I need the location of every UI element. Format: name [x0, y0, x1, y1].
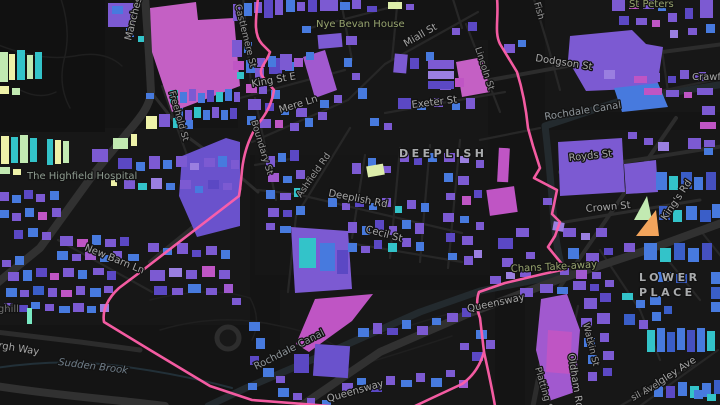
- building: [275, 0, 283, 15]
- building: [639, 320, 648, 329]
- building: [317, 33, 342, 49]
- building: [452, 28, 460, 35]
- building: [204, 158, 215, 167]
- building: [367, 6, 377, 12]
- area-label-deeplish: DEEPLISH: [399, 147, 487, 160]
- building: [27, 55, 33, 79]
- building: [636, 18, 647, 25]
- building: [678, 382, 687, 396]
- building: [138, 36, 144, 42]
- building: [393, 53, 408, 73]
- building: [290, 123, 299, 131]
- building: [275, 120, 283, 128]
- building: [14, 230, 23, 239]
- building: [218, 156, 227, 167]
- building: [221, 110, 228, 120]
- building: [118, 158, 132, 169]
- building: [148, 243, 159, 252]
- building: [667, 332, 675, 352]
- building: [458, 176, 469, 185]
- building: [619, 16, 629, 25]
- building: [33, 286, 44, 295]
- building: [50, 273, 59, 280]
- building: [20, 135, 28, 163]
- building: [202, 266, 215, 277]
- building: [476, 160, 484, 168]
- building: [12, 195, 21, 203]
- building: [448, 253, 457, 260]
- building: [348, 243, 357, 252]
- building: [280, 226, 291, 233]
- building: [604, 70, 615, 79]
- building: [374, 240, 382, 249]
- building: [12, 213, 21, 221]
- building: [432, 318, 441, 325]
- building: [490, 276, 501, 284]
- building: [388, 2, 402, 9]
- building: [194, 107, 201, 118]
- building: [283, 176, 292, 183]
- building: [23, 270, 32, 281]
- building: [268, 208, 279, 217]
- building: [428, 71, 454, 79]
- building: [276, 376, 285, 383]
- building: [668, 13, 677, 22]
- building: [707, 394, 716, 401]
- building: [644, 138, 653, 145]
- building: [677, 328, 685, 350]
- building: [462, 236, 473, 245]
- building: [286, 0, 295, 12]
- building: [138, 183, 147, 190]
- building: [28, 228, 38, 237]
- building: [342, 203, 350, 210]
- building: [320, 243, 335, 271]
- building: [584, 298, 597, 309]
- building: [131, 134, 137, 146]
- building: [688, 248, 699, 262]
- building: [180, 180, 191, 189]
- building: [711, 287, 720, 299]
- building: [11, 137, 18, 163]
- building: [55, 140, 61, 164]
- building: [92, 149, 108, 162]
- building: [540, 284, 553, 293]
- building: [600, 293, 611, 302]
- building: [700, 122, 716, 129]
- building: [224, 284, 233, 293]
- building: [704, 140, 715, 147]
- building: [0, 86, 9, 94]
- building: [460, 216, 469, 223]
- building: [658, 142, 669, 151]
- building: [149, 156, 160, 169]
- building: [605, 280, 614, 287]
- building: [346, 36, 357, 45]
- building: [446, 193, 455, 200]
- building: [169, 268, 182, 277]
- building: [72, 254, 81, 261]
- map-svg: Manchester RdCastlemere StFreehold StKin…: [0, 0, 720, 405]
- building: [348, 222, 357, 233]
- area-label-lower: LOWER: [639, 271, 701, 284]
- building: [702, 243, 712, 260]
- building: [518, 40, 526, 47]
- building: [406, 4, 414, 10]
- building: [644, 243, 657, 260]
- building: [36, 268, 47, 277]
- building: [0, 192, 9, 201]
- building: [652, 20, 660, 27]
- building: [590, 284, 599, 291]
- building: [263, 368, 274, 377]
- building: [712, 204, 720, 218]
- building: [188, 284, 201, 293]
- building: [278, 153, 286, 162]
- building: [600, 333, 609, 342]
- building: [36, 194, 45, 202]
- poi-label-st-peters: St Peters: [629, 0, 674, 10]
- building: [588, 372, 597, 381]
- building: [0, 167, 10, 174]
- building: [78, 270, 87, 279]
- building: [697, 88, 713, 95]
- building: [206, 246, 217, 255]
- building: [384, 123, 392, 130]
- building: [302, 26, 311, 33]
- building: [634, 76, 647, 83]
- building: [73, 303, 84, 312]
- building: [568, 248, 579, 259]
- building: [421, 203, 429, 212]
- building: [266, 223, 275, 230]
- building: [35, 52, 42, 79]
- building: [189, 89, 196, 101]
- building: [294, 58, 303, 67]
- building: [402, 238, 411, 247]
- building: [474, 190, 482, 198]
- building: [104, 286, 113, 293]
- building: [249, 322, 260, 331]
- building: [186, 270, 197, 279]
- building: [688, 138, 701, 149]
- building: [20, 290, 29, 297]
- building: [370, 118, 379, 126]
- building: [628, 132, 637, 139]
- building: [624, 160, 658, 194]
- road-label-crawford-st: Crawford St: [692, 72, 720, 83]
- building: [294, 354, 309, 373]
- building: [308, 0, 317, 12]
- building: [660, 248, 671, 262]
- building: [361, 246, 370, 253]
- park-area: [0, 0, 105, 132]
- building: [113, 138, 128, 149]
- building: [180, 92, 187, 103]
- building: [27, 308, 32, 324]
- building: [652, 312, 661, 321]
- building: [296, 206, 305, 215]
- building: [455, 78, 464, 87]
- building: [657, 328, 665, 352]
- building: [486, 186, 517, 216]
- building: [697, 328, 705, 352]
- building: [410, 58, 419, 69]
- building: [426, 52, 434, 61]
- building: [706, 172, 716, 190]
- building: [306, 52, 314, 60]
- building: [293, 393, 302, 400]
- area-label-springhill: Springhill: [0, 304, 19, 315]
- building: [146, 116, 157, 129]
- building: [666, 386, 675, 398]
- building: [620, 73, 629, 80]
- building: [428, 81, 454, 89]
- building: [387, 328, 398, 335]
- building: [1, 136, 9, 164]
- building: [573, 281, 586, 290]
- building: [688, 28, 697, 35]
- building: [468, 22, 477, 31]
- building: [687, 330, 695, 352]
- building: [340, 2, 350, 10]
- building: [464, 256, 473, 265]
- building: [444, 173, 453, 182]
- building: [656, 172, 667, 190]
- building: [416, 242, 424, 251]
- building: [185, 110, 192, 120]
- building: [395, 206, 402, 213]
- building: [706, 24, 715, 33]
- building: [686, 206, 697, 220]
- building: [234, 92, 240, 102]
- building: [711, 272, 720, 284]
- building: [248, 99, 261, 110]
- building: [373, 323, 382, 334]
- building: [15, 256, 24, 265]
- building: [203, 110, 210, 120]
- building: [190, 163, 199, 170]
- building: [636, 300, 645, 308]
- building: [402, 320, 411, 329]
- building: [320, 100, 329, 108]
- building: [669, 176, 678, 190]
- building: [45, 304, 54, 311]
- building: [225, 89, 232, 101]
- building: [280, 193, 291, 200]
- building: [223, 183, 232, 190]
- building: [60, 236, 73, 246]
- building: [280, 54, 292, 70]
- building: [707, 331, 715, 351]
- building: [256, 338, 265, 349]
- building: [417, 326, 428, 335]
- building: [136, 162, 145, 171]
- building: [172, 288, 183, 295]
- building: [12, 88, 20, 95]
- building: [711, 302, 720, 312]
- building: [150, 270, 165, 281]
- building: [498, 238, 513, 249]
- building: [664, 306, 672, 314]
- building: [290, 150, 299, 161]
- building: [92, 235, 101, 245]
- building: [647, 330, 655, 352]
- building: [604, 248, 613, 255]
- building: [558, 138, 625, 196]
- building: [612, 0, 625, 11]
- building: [146, 93, 154, 99]
- building: [666, 90, 679, 97]
- building: [24, 190, 33, 199]
- building: [416, 373, 425, 382]
- building: [25, 208, 34, 217]
- building: [344, 58, 352, 67]
- building: [358, 328, 369, 337]
- building: [694, 177, 703, 190]
- building: [63, 268, 74, 277]
- building: [30, 138, 37, 162]
- building: [248, 383, 257, 390]
- building: [603, 351, 614, 360]
- building: [31, 302, 40, 309]
- building: [516, 228, 529, 237]
- building: [232, 298, 241, 305]
- building: [462, 196, 471, 205]
- building: [497, 148, 510, 183]
- building: [398, 98, 411, 109]
- building: [87, 306, 96, 313]
- building: [297, 2, 305, 11]
- building: [105, 239, 116, 247]
- building: [596, 228, 607, 237]
- building: [283, 210, 292, 217]
- building: [76, 286, 85, 295]
- building: [305, 118, 313, 127]
- building: [388, 243, 397, 252]
- building: [352, 0, 361, 9]
- building: [120, 237, 129, 246]
- building: [177, 243, 188, 254]
- building: [334, 95, 342, 103]
- building: [431, 378, 442, 387]
- building: [176, 156, 187, 167]
- building: [337, 250, 348, 274]
- building: [198, 93, 205, 103]
- building: [446, 370, 455, 377]
- building: [48, 288, 57, 297]
- building: [557, 287, 568, 294]
- building: [6, 288, 17, 297]
- building: [407, 200, 416, 209]
- building: [216, 92, 223, 102]
- building: [208, 180, 219, 189]
- building: [0, 52, 8, 82]
- building: [592, 272, 601, 279]
- building: [644, 88, 662, 95]
- building: [50, 191, 59, 200]
- building: [59, 306, 70, 313]
- building: [474, 250, 482, 258]
- building: [447, 313, 458, 322]
- building: [264, 0, 273, 18]
- building: [318, 112, 327, 120]
- building: [402, 220, 411, 229]
- building: [668, 76, 676, 83]
- building: [151, 178, 162, 189]
- poi-label-highfield-hospital: The Highfield Hospital: [26, 171, 137, 182]
- building: [207, 90, 214, 102]
- building: [694, 390, 703, 399]
- building: [313, 344, 350, 378]
- building: [2, 260, 11, 267]
- building: [581, 233, 590, 240]
- building: [597, 313, 610, 324]
- building: [212, 107, 219, 118]
- building: [231, 160, 239, 169]
- building: [624, 314, 635, 325]
- building: [685, 8, 693, 19]
- building: [684, 92, 692, 98]
- area-label-place: PLACE: [639, 286, 696, 299]
- building: [192, 250, 201, 257]
- building: [38, 212, 47, 220]
- building: [219, 270, 230, 279]
- building: [428, 60, 454, 69]
- building: [195, 186, 203, 193]
- building: [107, 271, 116, 280]
- building: [352, 163, 361, 174]
- building: [206, 288, 217, 295]
- building: [93, 268, 104, 275]
- building: [221, 250, 230, 259]
- building: [704, 148, 713, 155]
- building: [47, 139, 53, 165]
- poi-label-nye-bevan-house: Nye Bevan House: [316, 19, 405, 30]
- building: [266, 190, 275, 199]
- roundabout: [217, 327, 239, 349]
- building: [415, 223, 424, 234]
- building: [446, 233, 455, 242]
- building: [443, 213, 454, 222]
- building: [163, 160, 172, 169]
- building: [603, 368, 612, 376]
- building: [543, 198, 552, 205]
- building: [352, 73, 360, 80]
- building: [296, 170, 305, 179]
- building: [154, 286, 167, 295]
- building: [299, 238, 316, 268]
- building: [112, 6, 123, 14]
- building: [386, 376, 395, 385]
- building: [670, 30, 678, 38]
- building: [680, 70, 689, 79]
- building: [233, 61, 244, 70]
- building: [166, 183, 175, 190]
- building: [63, 141, 69, 163]
- building: [9, 54, 15, 80]
- building: [278, 388, 289, 397]
- building: [714, 380, 720, 394]
- building: [401, 380, 412, 387]
- building: [42, 232, 51, 240]
- map-canvas[interactable]: Manchester RdCastlemere StFreehold StKin…: [0, 0, 720, 405]
- building: [57, 251, 68, 260]
- building: [460, 343, 469, 350]
- building: [674, 243, 685, 260]
- building: [230, 108, 237, 119]
- building: [486, 340, 495, 349]
